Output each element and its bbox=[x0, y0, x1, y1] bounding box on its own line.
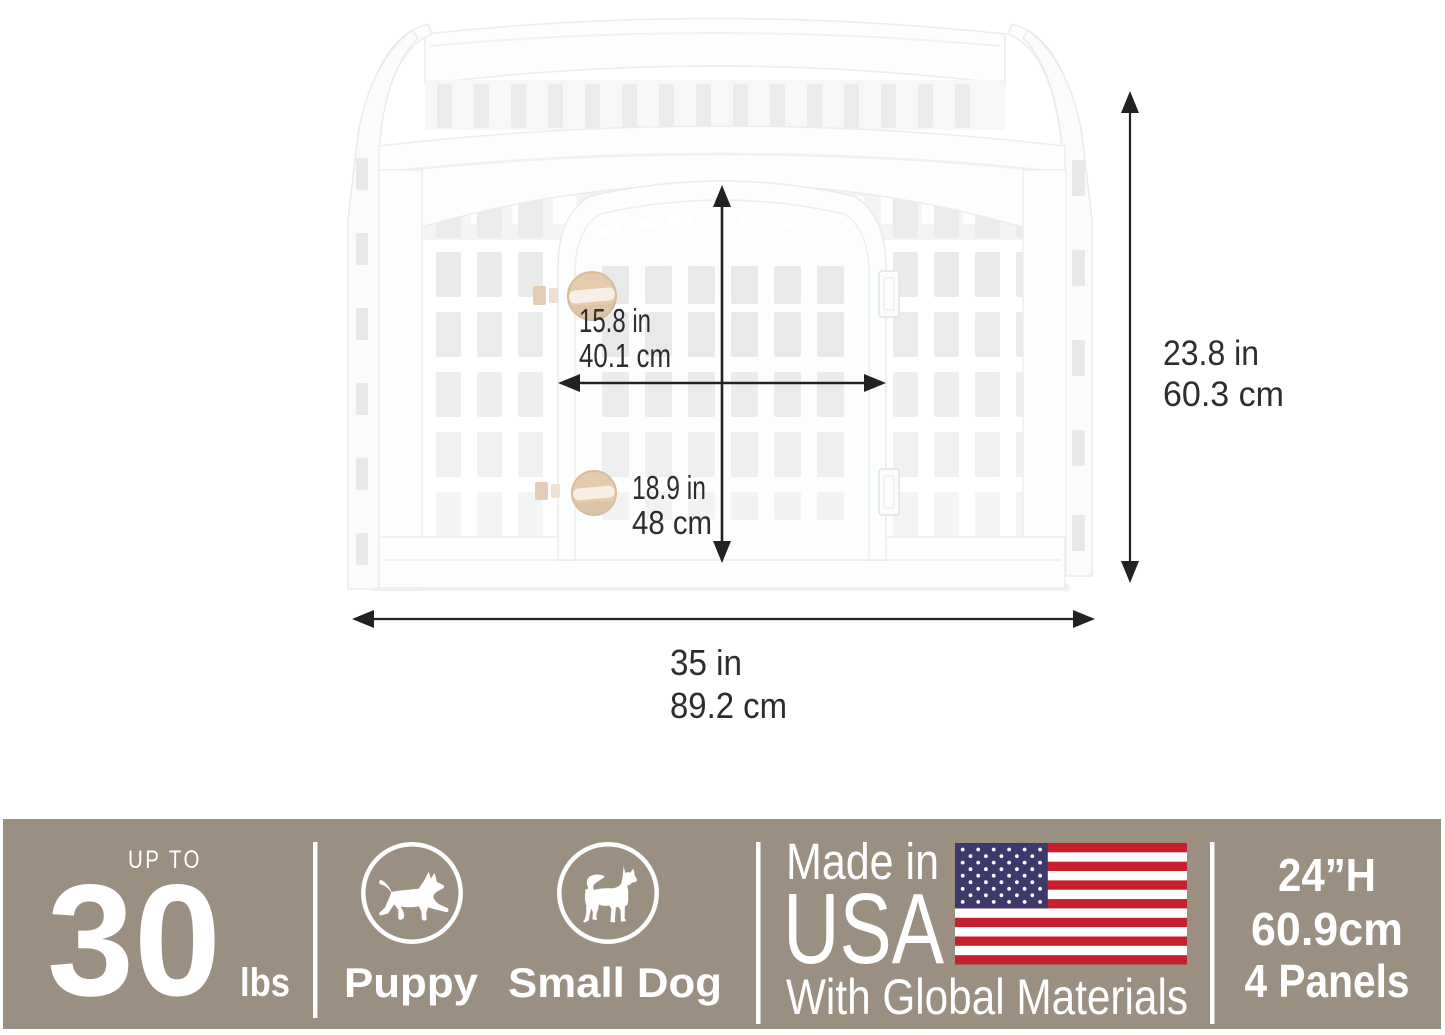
svg-text:15.8 in: 15.8 in bbox=[579, 302, 651, 339]
svg-text:With Global Materials: With Global Materials bbox=[786, 969, 1188, 1025]
svg-text:60.3 cm: 60.3 cm bbox=[1163, 375, 1284, 414]
svg-text:89.2 cm: 89.2 cm bbox=[670, 685, 787, 726]
svg-text:23.8 in: 23.8 in bbox=[1163, 334, 1259, 373]
svg-text:Puppy: Puppy bbox=[344, 959, 479, 1006]
svg-text:lbs: lbs bbox=[240, 961, 290, 1005]
svg-text:60.9cm: 60.9cm bbox=[1251, 903, 1403, 955]
svg-text:40.1 cm: 40.1 cm bbox=[579, 337, 671, 374]
svg-text:24”H: 24”H bbox=[1278, 849, 1376, 901]
svg-text:48 cm: 48 cm bbox=[632, 504, 712, 541]
svg-text:18.9 in: 18.9 in bbox=[632, 469, 706, 506]
svg-text:4 Panels: 4 Panels bbox=[1245, 955, 1410, 1007]
svg-text:35 in: 35 in bbox=[670, 642, 742, 683]
svg-text:Small Dog: Small Dog bbox=[508, 959, 722, 1006]
svg-text:30: 30 bbox=[47, 851, 221, 1029]
